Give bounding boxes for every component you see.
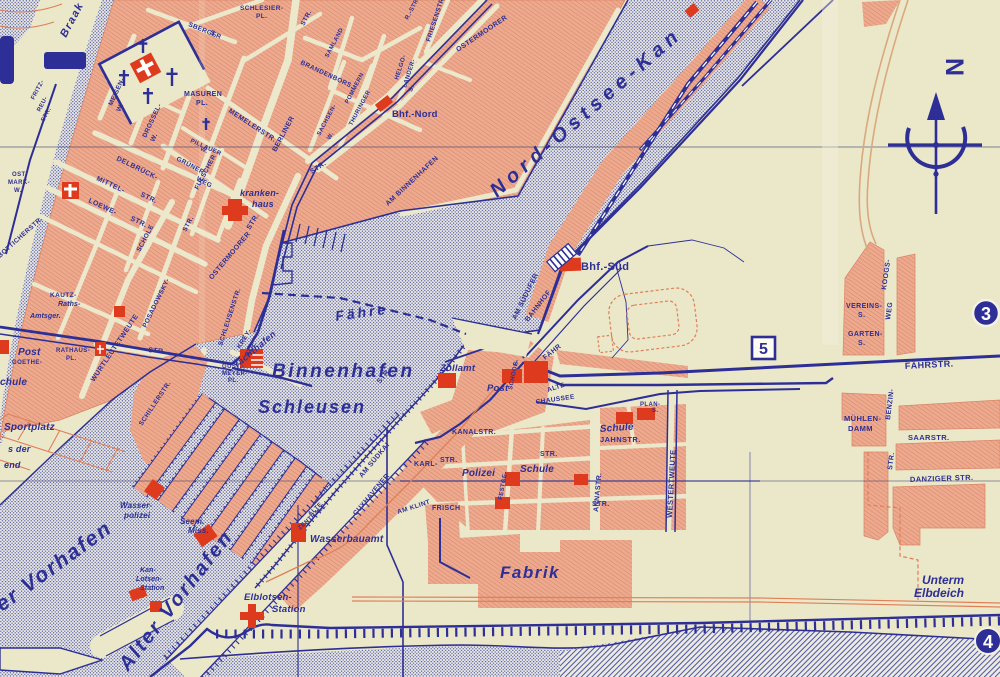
svg-text:GOETHE-: GOETHE- (12, 360, 42, 366)
svg-text:Sportplatz: Sportplatz (4, 422, 55, 433)
svg-text:N: N (940, 58, 968, 76)
svg-text:polizei: polizei (123, 511, 151, 520)
svg-text:GUST.-: GUST.- (222, 364, 244, 370)
svg-text:VEREINS-: VEREINS- (846, 303, 883, 310)
svg-text:5: 5 (759, 341, 768, 358)
svg-text:S.: S. (858, 340, 865, 347)
svg-text:Station: Station (272, 604, 306, 615)
svg-text:Elbdeich: Elbdeich (914, 586, 964, 600)
svg-text:MÜHLEN-: MÜHLEN- (844, 414, 881, 423)
svg-text:chule: chule (0, 377, 27, 388)
svg-text:MASUREN: MASUREN (184, 91, 222, 98)
svg-text:PL.: PL. (228, 378, 239, 384)
svg-text:GARTEN-: GARTEN- (848, 331, 883, 338)
svg-text:STR.: STR. (440, 457, 458, 464)
svg-text:KAUTZ-: KAUTZ- (50, 292, 77, 299)
svg-text:DAMM: DAMM (848, 424, 873, 433)
svg-text:Raths-: Raths- (58, 301, 81, 308)
svg-text:MARK-: MARK- (8, 180, 30, 186)
svg-text:Schule: Schule (520, 464, 554, 475)
svg-text:Schleusen: Schleusen (258, 397, 366, 417)
svg-text:Wasserbauamt: Wasserbauamt (310, 534, 384, 545)
svg-text:Unterm: Unterm (922, 573, 964, 587)
svg-text:s der: s der (8, 444, 31, 454)
svg-text:Post: Post (18, 347, 41, 358)
svg-text:FRISCH: FRISCH (432, 505, 460, 512)
svg-text:3: 3 (981, 304, 991, 324)
svg-text:RATHAUS-: RATHAUS- (56, 348, 90, 354)
svg-text:Binnenhafen: Binnenhafen (272, 361, 415, 382)
svg-text:Fabrik: Fabrik (500, 563, 560, 582)
svg-text:4: 4 (983, 632, 993, 652)
svg-text:Miss.: Miss. (188, 526, 209, 535)
svg-text:Amtsger.: Amtsger. (29, 313, 61, 320)
svg-text:Seem.: Seem. (180, 517, 205, 526)
svg-text:Bhf.-Süd: Bhf.-Süd (581, 261, 629, 273)
svg-text:Lotsen-: Lotsen- (136, 576, 163, 583)
svg-text:W.: W. (14, 188, 22, 194)
svg-text:S.: S. (652, 408, 658, 414)
svg-text:SCHLESIER-: SCHLESIER- (240, 5, 283, 12)
svg-text:S.: S. (858, 312, 865, 319)
svg-text:Bhf.-Nord: Bhf.-Nord (392, 109, 438, 120)
svg-text:haus: haus (252, 199, 274, 209)
svg-text:PL.: PL. (66, 356, 77, 362)
svg-text:KARL-: KARL- (414, 461, 438, 468)
svg-text:Polizei: Polizei (462, 468, 495, 479)
svg-text:PL.: PL. (256, 13, 267, 20)
svg-text:SAARSTR.: SAARSTR. (908, 433, 950, 442)
svg-text:kranken-: kranken- (240, 188, 279, 198)
svg-text:OST-: OST- (12, 172, 28, 178)
svg-text:JAHNSTR.: JAHNSTR. (600, 435, 641, 444)
svg-text:Wasser-: Wasser- (120, 501, 153, 510)
svg-text:PL.: PL. (196, 100, 208, 107)
svg-text:Station: Station (140, 585, 164, 592)
svg-text:Elblotsen-: Elblotsen- (244, 592, 292, 603)
svg-text:MEYER-: MEYER- (222, 371, 248, 377)
svg-text:Kan-: Kan- (140, 567, 157, 574)
svg-text:Zollamt: Zollamt (439, 363, 476, 374)
svg-text:STR.: STR. (540, 451, 558, 458)
svg-text:Post: Post (487, 383, 509, 394)
svg-text:KANALSTR.: KANALSTR. (452, 429, 496, 436)
svg-text:end: end (4, 460, 21, 470)
